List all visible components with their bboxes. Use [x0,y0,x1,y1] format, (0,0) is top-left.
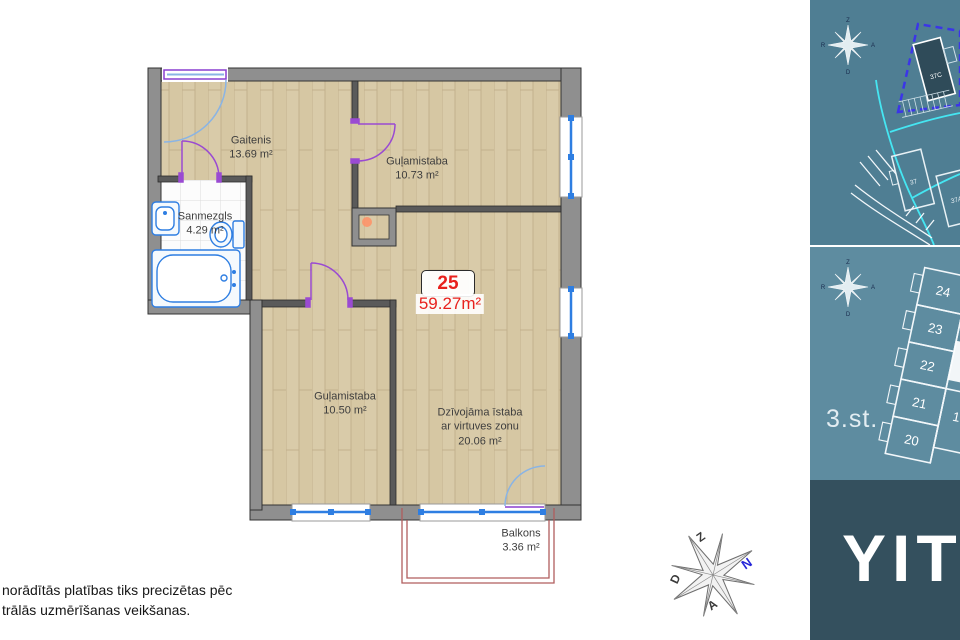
site-map-drawing: Z A D R 37C [810,0,960,245]
site-streets-white [851,150,934,245]
room-area: 10.73 m² [386,169,448,183]
room-area: 20.06 m² [438,434,523,448]
sidebar-floor-plan: Z A D R [810,245,960,480]
room-subtitle: ar virtuves zonu [438,420,523,434]
room-label-sanmezgls: Sanmezgls 4.29 m² [178,210,232,239]
room-name: Dzīvojāma īstaba [438,406,523,420]
room-area: 4.29 m² [178,224,232,238]
building-label-37: 37 [909,178,918,187]
unit-total-area: 59.27m² [416,294,484,314]
floor-mini-plan: 24 23 22 21 20 1 [876,263,960,472]
disclaimer-line1: norādītās platības tiks precizētas pēc [2,580,232,600]
floor-mini-plan-drawing: Z A D R [810,247,960,480]
bathtub [152,250,240,307]
sidebar-logo-panel: YIT [810,480,960,640]
disclaimer-line2: trālās uzmērīšanas veikšanas. [2,600,232,620]
apartment-number: 20 [903,431,920,449]
floor-plan-compass-icon: Z A D R [821,260,875,318]
floor-label: 3.st. [826,405,878,434]
room-name: Guļamistaba [386,155,448,169]
sidebar-site-map: Z A D R 37C [810,0,960,245]
room-name: Guļamistaba [314,390,376,404]
site-building-current: 37C [913,35,960,101]
apartment-number-partial: 1 [951,409,960,425]
sink [152,202,179,235]
room-label-balkons: Balkons 3.36 m² [501,527,540,556]
room-name: Sanmezgls [178,210,232,224]
room-name: Balkons [501,527,540,541]
yit-logo: YIT [842,520,960,596]
highlighted-apartment [948,341,960,386]
room-label-bedroom1: Guļamistaba 10.73 m² [386,155,448,184]
room-area: 10.50 m² [314,404,376,418]
compass-letter: R [821,285,826,291]
room-name: Gaitenis [229,134,272,148]
compass-letter: D [846,70,851,76]
disclaimer-text: norādītās platības tiks precizētas pēc t… [2,580,232,621]
unit-number-badge: 25 [421,270,475,297]
site-building-37a: 37A [936,169,960,226]
site-map-compass-icon: Z A D R [821,18,875,76]
compass-letter: R [821,43,826,49]
compass-letter: A [871,43,875,49]
compass-letter: Z [846,260,850,266]
floorplan-drawing [0,0,810,640]
compass-letter: A [871,285,875,291]
window-bedroom2 [290,504,371,521]
apartment-number: 22 [919,357,936,375]
apartment-number: 21 [911,394,928,412]
floorplan-canvas: Gaitenis 13.69 m² Guļamistaba 10.73 m² S… [0,0,810,640]
site-building-37: 37 [886,149,934,212]
apartment-number: 24 [935,283,952,301]
building-label-37a: 37A [950,195,960,205]
room-area: 3.36 m² [501,541,540,555]
apartment-number: 23 [927,320,944,338]
compass-letter: D [846,312,851,318]
window-bedroom1 [560,115,582,199]
window-livingroom [560,286,582,339]
unit-number: 25 [437,273,458,295]
sidebar: Z A D R 37C [810,0,960,640]
room-label-bedroom2: Guļamistaba 10.50 m² [314,390,376,419]
room-area: 13.69 m² [229,148,272,162]
utility-shaft [352,208,396,246]
room-label-gaitenis: Gaitenis 13.69 m² [229,134,272,163]
room-label-livingroom: Dzīvojāma īstaba ar virtuves zonu 20.06 … [438,406,523,449]
compass-letter: Z [846,18,850,24]
